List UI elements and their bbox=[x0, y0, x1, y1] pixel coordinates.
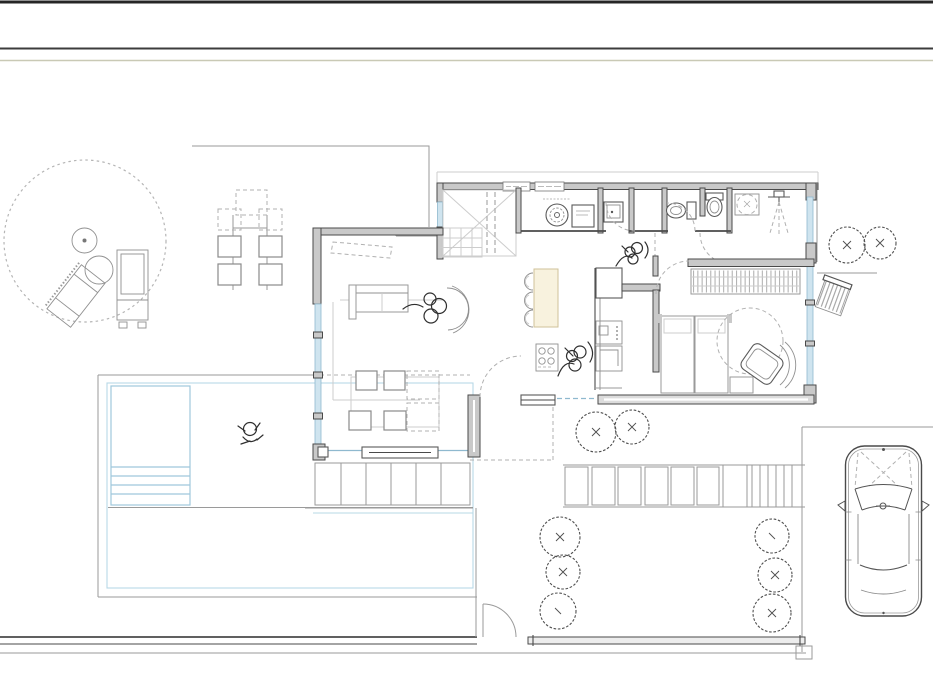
window-tag bbox=[535, 182, 564, 191]
header-rules bbox=[0, 2, 933, 61]
house-right-wall bbox=[804, 183, 817, 403]
wardrobe bbox=[691, 269, 800, 294]
washing-machine bbox=[543, 199, 571, 226]
sun-lounger-tilted bbox=[45, 263, 105, 327]
fridge bbox=[596, 268, 622, 298]
bar-stools bbox=[525, 273, 534, 327]
rain-barrel bbox=[813, 275, 852, 316]
swimming-pool bbox=[111, 386, 190, 505]
dining-set bbox=[349, 371, 439, 431]
patio-table bbox=[85, 256, 113, 284]
dryer bbox=[572, 205, 594, 227]
sliding-door bbox=[318, 447, 468, 458]
perimeter-walls bbox=[0, 508, 812, 659]
hall-plant-sketch bbox=[616, 242, 648, 266]
toilet-1 bbox=[667, 202, 697, 219]
entry-door-glazing bbox=[438, 202, 443, 227]
kitchen-plant-sketch bbox=[558, 342, 593, 376]
sofa bbox=[349, 285, 408, 319]
entry-closet bbox=[440, 190, 516, 257]
garden-gate bbox=[483, 604, 516, 637]
porch-deck bbox=[305, 463, 473, 508]
potted-plant-sketch bbox=[403, 286, 469, 333]
living-room bbox=[305, 228, 521, 508]
pool-terrace bbox=[98, 375, 477, 597]
cooktop bbox=[536, 344, 558, 371]
bedroom bbox=[521, 256, 814, 405]
patio-circle bbox=[4, 160, 166, 328]
shower bbox=[768, 191, 790, 235]
nightstand bbox=[730, 377, 753, 393]
outdoor-dining bbox=[218, 190, 282, 290]
laundry-basin bbox=[604, 202, 623, 222]
patio-umbrella bbox=[72, 228, 97, 253]
toilet-2 bbox=[706, 193, 723, 217]
garden-trees bbox=[540, 227, 896, 632]
door-arc-living-kitchen bbox=[480, 356, 521, 397]
floor-plan-viewport bbox=[0, 0, 933, 700]
sideboard-dashed bbox=[331, 242, 392, 258]
window-bottom bbox=[521, 395, 555, 405]
kitchen bbox=[470, 268, 660, 460]
car-top-view bbox=[838, 446, 929, 616]
sun-lounger-vertical bbox=[117, 250, 148, 328]
kitchen-island bbox=[534, 269, 558, 327]
swimmer-figure bbox=[238, 423, 263, 445]
floor-plan-drawing bbox=[0, 0, 933, 700]
washbasin bbox=[735, 194, 759, 215]
house-top-strip bbox=[437, 172, 818, 266]
garden-paving bbox=[563, 465, 805, 507]
